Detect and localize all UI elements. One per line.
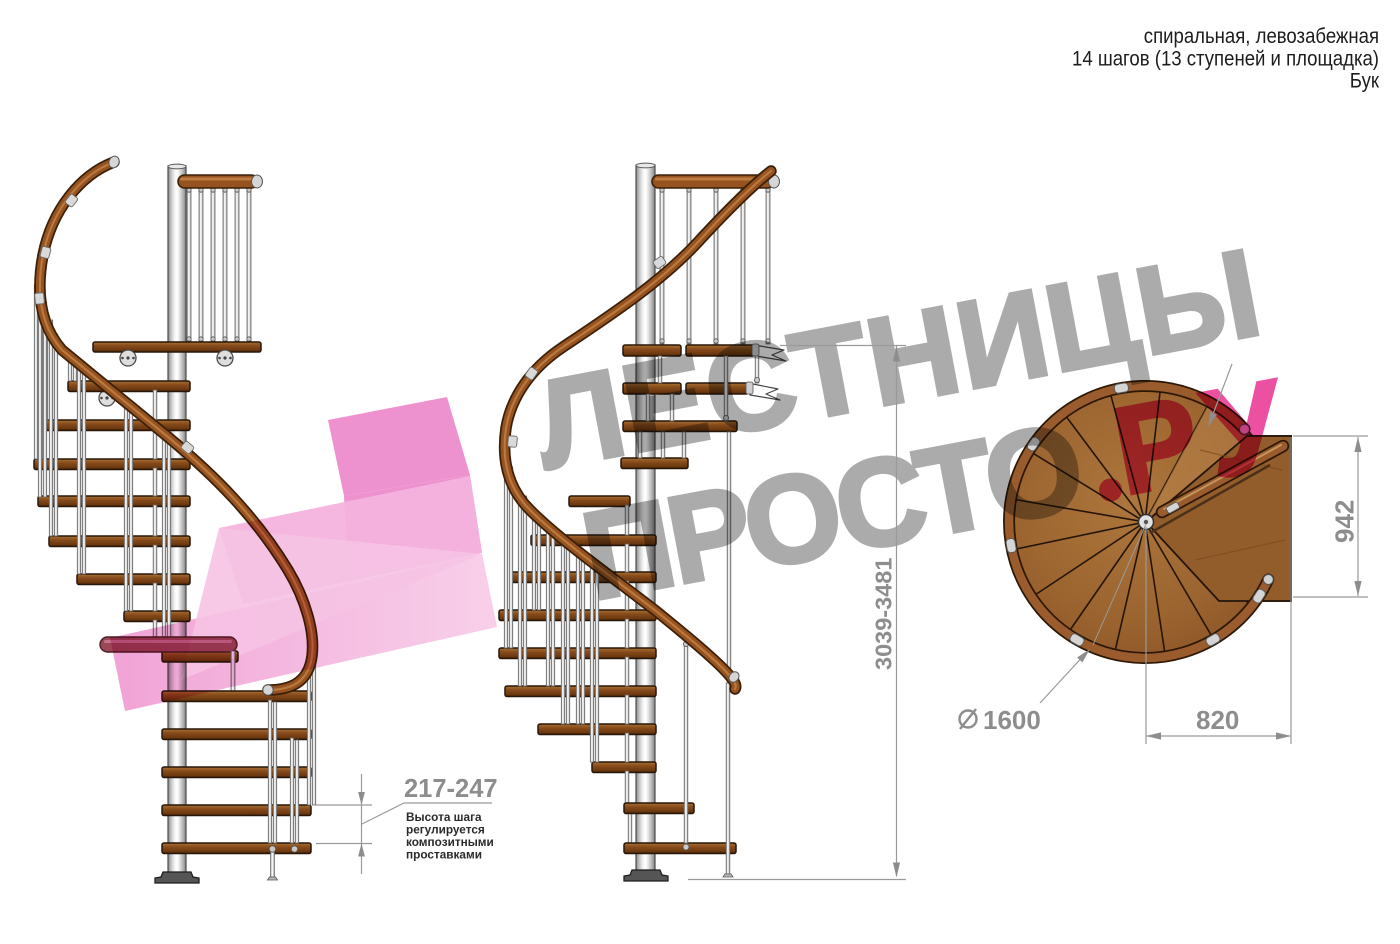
svg-text:1600: 1600 bbox=[983, 705, 1041, 735]
svg-text:942: 942 bbox=[1330, 500, 1360, 543]
svg-text:217-247: 217-247 bbox=[404, 775, 498, 803]
svg-text:спиральная, левозабежная: спиральная, левозабежная bbox=[1144, 25, 1379, 48]
svg-text:14 шагов (13 ступеней и площад: 14 шагов (13 ступеней и площадка) bbox=[1072, 47, 1379, 70]
svg-text:3039-3481: 3039-3481 bbox=[871, 558, 897, 670]
svg-text:820: 820 bbox=[1196, 705, 1239, 735]
svg-text:проставками: проставками bbox=[406, 848, 482, 862]
svg-text:Бук: Бук bbox=[1350, 69, 1379, 92]
